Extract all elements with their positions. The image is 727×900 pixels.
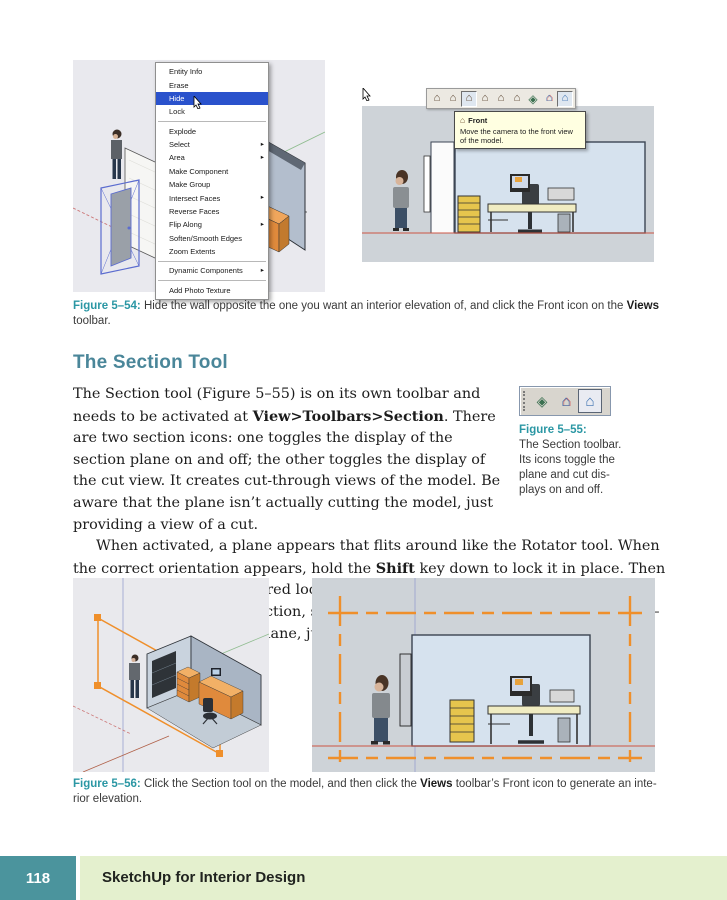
section-elevation-illustration <box>312 578 655 772</box>
pc-tower <box>558 718 570 742</box>
section-plane-illustration <box>73 578 269 772</box>
context-menu: Entity InfoEraseHideLockExplodeSelectAre… <box>155 62 269 300</box>
page-number: 118 <box>0 856 76 900</box>
context-menu-item[interactable]: Make Component <box>156 165 268 178</box>
context-menu-item[interactable]: Make Group <box>156 178 268 191</box>
section-toolbar: ◈⌂⌂ <box>519 386 611 416</box>
figure-5-56-model-view <box>73 578 269 772</box>
context-menu-item[interactable]: Zoom Extents <box>156 245 268 258</box>
front-tooltip: ⌂Front Move the camera to the front view… <box>454 111 586 149</box>
figure-label: Figure 5–54: <box>73 300 141 312</box>
figure-5-54-elevation-view: ⌂⌂⌂⌂⌂⌂◈⌂⌂ ⌂Front Move the camera to the … <box>362 88 654 262</box>
figure-label: Figure 5–56: <box>73 778 141 790</box>
figure-5-56-caption: Figure 5–56: Click the Section tool on t… <box>73 777 677 807</box>
views-toolbar: ⌂⌂⌂⌂⌂⌂◈⌂⌂ <box>426 88 576 109</box>
context-menu-item[interactable]: Select <box>156 138 268 151</box>
front-view-icon: ⌂ <box>460 115 465 125</box>
context-menu-item[interactable]: Lock <box>156 105 268 118</box>
context-menu-item[interactable]: Soften/Smooth Edges <box>156 232 268 245</box>
footer-bar: SketchUp for Interior Design <box>80 856 727 900</box>
iso-view-icon[interactable]: ⌂ <box>429 91 445 107</box>
page-title: The Section Tool <box>73 352 228 374</box>
figure-5-56-elevation-view <box>312 578 655 772</box>
cursor-icon <box>193 96 202 109</box>
context-menu-item[interactable] <box>158 261 266 262</box>
right-view-icon[interactable]: ⌂ <box>477 91 493 107</box>
context-menu-item[interactable]: Intersect Faces <box>156 191 268 204</box>
desk <box>488 204 576 212</box>
back-view-icon[interactable]: ⌂ <box>493 91 509 107</box>
context-menu-item[interactable]: Area <box>156 151 268 164</box>
tooltip-title: Front <box>468 116 487 125</box>
section-plane-tool-icon[interactable]: ◈ <box>530 389 554 413</box>
left-view-icon[interactable]: ⌂ <box>509 91 525 107</box>
context-menu-item[interactable] <box>158 280 266 281</box>
context-menu-item[interactable] <box>158 121 266 122</box>
front-view-icon[interactable]: ⌂ <box>461 91 477 107</box>
drawers-unit <box>450 700 474 742</box>
door-panel <box>400 654 411 726</box>
figure-label: Figure 5–55: <box>519 423 667 438</box>
printer <box>550 690 574 702</box>
figure-5-54-caption: Figure 5–54: Hide the wall opposite the … <box>73 299 663 329</box>
context-menu-item[interactable]: Dynamic Components <box>156 264 268 277</box>
pc-tower <box>558 214 570 232</box>
context-menu-item[interactable]: Explode <box>156 125 268 138</box>
figure-5-55-caption: Figure 5–55: The Section toolbar.Its ico… <box>519 423 667 498</box>
book-title: SketchUp for Interior Design <box>80 856 727 900</box>
context-menu-item[interactable]: Flip Along <box>156 218 268 231</box>
figure-5-55: ◈⌂⌂ Figure 5–55: The Section toolbar.Its… <box>519 386 667 498</box>
display-section-cuts-icon[interactable]: ⌂ <box>557 91 573 107</box>
display-section-planes-icon[interactable]: ⌂ <box>541 91 557 107</box>
interior-wall <box>455 142 645 233</box>
context-menu-item[interactable]: Erase <box>156 78 268 91</box>
toolbar-drag-handle[interactable] <box>523 391 527 411</box>
display-section-cuts-icon[interactable]: ⌂ <box>578 389 602 413</box>
book-page: Entity InfoEraseHideLockExplodeSelectAre… <box>0 0 727 900</box>
top-view-icon[interactable]: ⌂ <box>445 91 461 107</box>
chair <box>203 698 213 712</box>
context-menu-item[interactable]: Hide <box>156 92 268 105</box>
figure-5-54-model-view: Entity InfoEraseHideLockExplodeSelectAre… <box>73 60 325 292</box>
context-menu-item[interactable]: Add Photo Texture <box>156 284 268 297</box>
printer <box>548 188 574 200</box>
context-menu-item[interactable]: Entity Info <box>156 65 268 78</box>
display-section-planes-icon[interactable]: ⌂ <box>554 389 578 413</box>
hidden-wall-edge <box>431 142 454 233</box>
desk <box>488 706 580 714</box>
section-plane-tool-icon[interactable]: ◈ <box>525 91 541 107</box>
drawers-unit <box>458 196 480 232</box>
context-menu-item[interactable]: Reverse Faces <box>156 205 268 218</box>
tooltip-body: Move the camera to the front view of the… <box>460 127 580 145</box>
cursor-icon <box>362 88 371 101</box>
